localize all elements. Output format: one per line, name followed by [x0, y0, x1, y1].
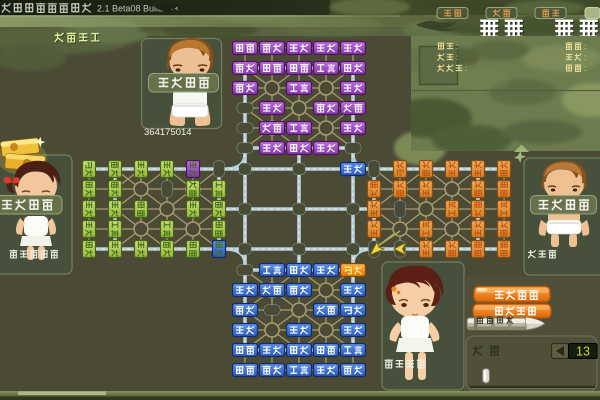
svg-text::: : [465, 64, 467, 73]
svg-text::: : [456, 53, 458, 62]
svg-text::: : [456, 42, 458, 51]
svg-text::: : [584, 64, 586, 73]
svg-text::: : [584, 53, 586, 62]
svg-text:364175014: 364175014 [144, 127, 192, 138]
svg-text:13: 13 [576, 345, 590, 359]
svg-text::: : [584, 42, 586, 51]
